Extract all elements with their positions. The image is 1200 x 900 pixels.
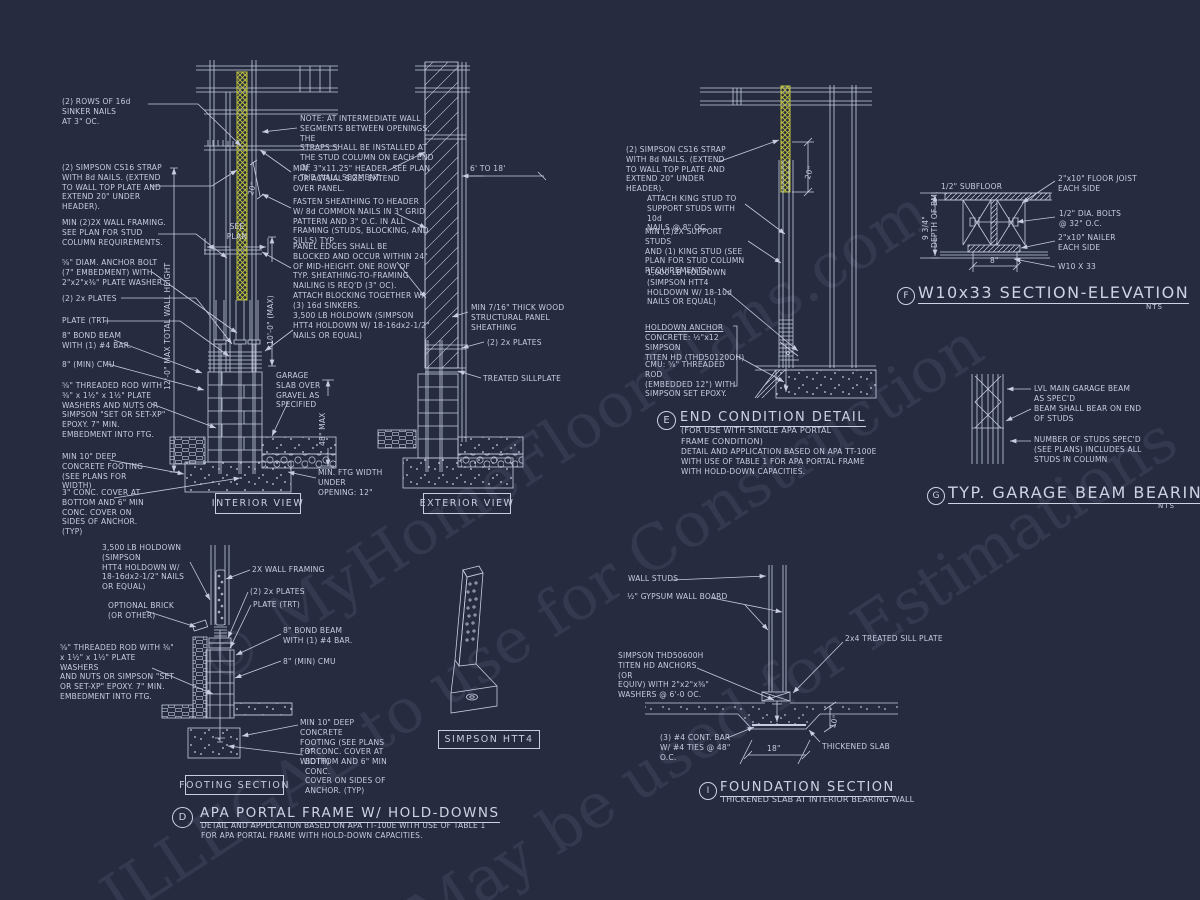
callout-2x-plates: (2) 2x PLATES <box>62 294 172 304</box>
detail-bubble-e: E <box>657 411 676 430</box>
callout-holdown-anchor-concrete: CONCRETE: ½"x12 SIMPSON TITEN HD (THD501… <box>645 333 750 362</box>
callout-ext-plates: (2) 2x PLATES <box>487 338 577 348</box>
callout-treated-sill: 2x4 TREATED SILL PLATE <box>845 634 955 644</box>
callout-cmu: 8" (MIN) CMU <box>62 360 172 370</box>
callout-nailer: 2"x10" NAILER EACH SIDE <box>1058 233 1138 253</box>
drawing-linework <box>0 0 1200 900</box>
cs16-strap-highlight <box>237 72 247 300</box>
callout-1000lb-holdown: 1,000 LB HOLDOWN (SIMPSON HTT4 HOLDOWN W… <box>647 268 742 307</box>
callout-ftg-rod: ⅝" THREADED ROD WITH ⅜" x 1½" x 1½" PLAT… <box>60 643 175 702</box>
callout-ftg-cmu: 8" (MIN) CMU <box>283 657 353 667</box>
subtitle-apa-portal-frame: DETAIL AND APPLICATION BASED ON APA TT-1… <box>201 821 486 841</box>
callout-ftg-plates: (2) 2x PLATES <box>250 587 330 597</box>
subtitle-foundation-section: THICKENED SLAB AT INTERIOR BEARING WALL <box>721 795 914 806</box>
detail-bubble-f: F <box>897 287 915 305</box>
dim-48-max: 48" MAX <box>318 398 328 446</box>
title-end-condition: END CONDITION DETAIL <box>680 410 866 427</box>
callout-wall-framing: MIN (2)2X WALL FRAMING. SEE PLAN FOR STU… <box>62 218 172 247</box>
subtitle-end-condition-1: (FOR USE WITH SINGLE APA PORTAL FRAME CO… <box>681 426 831 448</box>
note-header: MIN. 3"x11.25" HEADER. SEE PLAN FOR ACTU… <box>293 164 433 193</box>
callout-conc-cover: 3" CONC. COVER AT BOTTOM AND 6" MIN CONC… <box>62 488 162 537</box>
detail-bubble-g: G <box>927 487 945 505</box>
callout-holdown-anchor-cmu: CMU: ⅝" THREADED ROD (EMBEDDED 12") WITH… <box>645 360 745 399</box>
label-exterior-view: EXTERIOR VIEW <box>423 493 511 514</box>
simpson-htt4-drawing <box>451 566 497 713</box>
callout-stud-count: NUMBER OF STUDS SPEC'D (SEE PLANS) INCLU… <box>1034 435 1149 464</box>
callout-ftg-plate-trt: PLATE (TRT) <box>253 600 323 610</box>
note-3500lb-holdown: 3,500 LB HOLDOWN (SIMPSON HTT4 HOLDOWN W… <box>293 311 433 340</box>
blueprint-sheet: (2) ROWS OF 16d SINKER NAILS AT 3" OC. (… <box>0 0 1200 900</box>
dim-see-plan: SEE PLAN <box>218 222 256 242</box>
callout-sillplate: TREATED SILLPLATE <box>483 374 578 384</box>
dim-opening-width: 6' TO 18' <box>470 164 530 174</box>
dim-10ft-max: 10'-0" (MAX) <box>266 275 276 345</box>
callout-sinker-nails: (2) ROWS OF 16d SINKER NAILS AT 3" OC. <box>62 97 172 126</box>
dim-18in: 18" <box>767 744 791 754</box>
callout-anchor-bolt: ⅝" DIAM. ANCHOR BOLT (7" EMBEDMENT) WITH… <box>62 258 172 287</box>
title-w10x33: W10x33 SECTION-ELEVATION <box>918 283 1189 304</box>
callout-panel-sheathing: MIN 7/16" THICK WOOD STRUCTURAL PANEL SH… <box>471 303 571 332</box>
callout-end-cs16: (2) SIMPSON CS16 STRAP WITH 8d NAILS. (E… <box>626 145 726 194</box>
callout-titen-anchors: SIMPSON THD50600H TITEN HD ANCHORS (OR E… <box>618 651 713 700</box>
callout-optional-brick: OPTIONAL BRICK (OR OTHER) <box>108 601 178 621</box>
note-fasten-sheathing: FASTEN SHEATHING TO HEADER W/ 8d COMMON … <box>293 197 433 246</box>
callout-ftg-cover: 3" CONC. COVER AT BOTTOM AND 6" MIN CONC… <box>305 747 405 796</box>
callout-dia-bolts: 1/2" DIA. BOLTS @ 32" O.C. <box>1059 209 1139 229</box>
callout-holdown-anchor-heading: HOLDOWN ANCHOR <box>645 323 745 333</box>
callout-bond-beam: 8" BOND BEAM WITH (1) #4 BAR. <box>62 331 172 351</box>
callout-cs16-strap: (2) SIMPSON CS16 STRAP WITH 8d NAILS. (E… <box>62 163 172 212</box>
callout-ftg-bond-beam: 8" BOND BEAM WITH (1) #4 BAR. <box>283 626 363 646</box>
label-footing-section: FOOTING SECTION <box>185 775 284 795</box>
label-simpson-htt4: SIMPSON HTT4 <box>438 730 540 749</box>
callout-footing: MIN 10" DEEP CONCRETE FOOTING (SEE PLANS… <box>62 452 162 491</box>
callout-w10x33: W10 X 33 <box>1058 262 1118 272</box>
subtitle-end-condition-2: DETAIL AND APPLICATION BASED ON APA TT-1… <box>681 447 877 477</box>
callout-floor-joist: 2"x10" FLOOR JOIST EACH SIDE <box>1058 174 1148 194</box>
callout-ftg-holdown: 3,500 LB HOLDOWN (SIMPSON HTT4 HOLDOWN W… <box>102 543 202 592</box>
dim-8in: 8" <box>990 256 1010 266</box>
detail-bubble-d: D <box>172 807 193 828</box>
callout-lvl-beam: LVL MAIN GARAGE BEAM AS SPEC'D <box>1034 384 1144 404</box>
detail-bubble-i: I <box>699 782 717 800</box>
callout-gypsum: ½" GYPSUM WALL BOARD <box>627 592 737 602</box>
callout-ftg-width: MIN. FTG WIDTH UNDER OPENING: 12" <box>318 468 398 497</box>
callout-cont-bar: (3) #4 CONT. BAR W/ #4 TIES @ 48" O.C. <box>660 733 740 762</box>
callout-beam-bear: BEAM SHALL BEAR ON END OF STUDS <box>1034 404 1149 424</box>
nts-garage-beam: NTS <box>1158 502 1175 510</box>
dim-depth-of-bm: DEPTH OF BM. <box>930 190 940 248</box>
nts-w10x33: NTS <box>1146 303 1163 311</box>
callout-thickened-slab: THICKENED SLAB <box>822 742 902 752</box>
callout-threaded-rod: ⅝" THREADED ROD WITH ⅜" x 1½" x 1½" PLAT… <box>62 381 174 440</box>
garage-beam-drawing <box>972 374 1031 464</box>
dim-wall-height: 12'-0" MAX TOTAL WALL HEIGHT <box>163 256 173 390</box>
note-panel-edges: PANEL EDGES SHALL BE BLOCKED AND OCCUR W… <box>293 242 433 310</box>
callout-ftg-framing: 2X WALL FRAMING <box>252 565 342 575</box>
callout-plate-trt: PLATE (TRT) <box>62 316 172 326</box>
title-garage-beam: TYP. GARAGE BEAM BEARING <box>948 483 1200 504</box>
callout-wall-studs: WALL STUDS <box>628 574 698 584</box>
callout-subfloor: 1/2" SUBFLOOR <box>941 182 1011 192</box>
w10x33-drawing <box>920 181 1055 272</box>
label-interior-view: INTERIOR VIEW <box>215 493 301 514</box>
